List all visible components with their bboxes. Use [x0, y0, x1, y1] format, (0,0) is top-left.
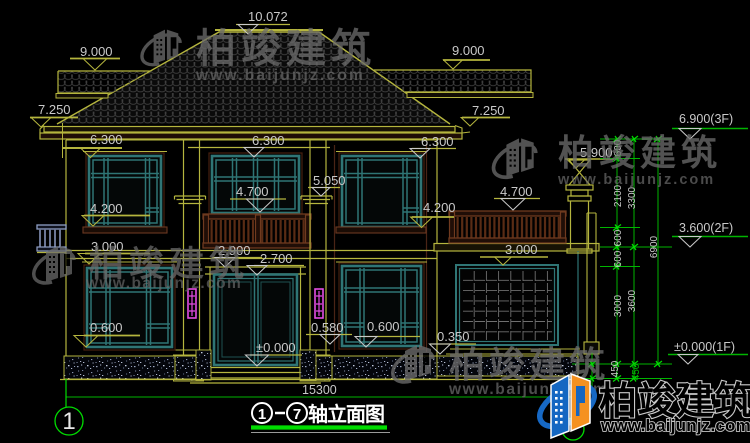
svg-text:1: 1 [258, 406, 266, 423]
svg-text:10.072: 10.072 [248, 9, 288, 24]
svg-text:450: 450 [610, 360, 621, 377]
svg-text:3.000: 3.000 [505, 242, 538, 257]
svg-text:www.baijunjz.com: www.baijunjz.com [195, 67, 365, 84]
svg-text:6.300: 6.300 [90, 132, 123, 147]
svg-text:9.000: 9.000 [80, 44, 113, 59]
svg-text:7: 7 [293, 406, 301, 423]
svg-text:4.700: 4.700 [500, 184, 533, 199]
svg-text:7.250: 7.250 [472, 103, 505, 118]
svg-text:4.200: 4.200 [90, 201, 123, 216]
svg-text:6.300: 6.300 [252, 133, 285, 148]
svg-text:0.600: 0.600 [90, 320, 123, 335]
svg-text:柏竣建筑: 柏竣建筑 [558, 132, 722, 173]
svg-text:6.900(3F): 6.900(3F) [679, 112, 733, 126]
svg-text:0.350: 0.350 [437, 329, 470, 344]
svg-text:6.300: 6.300 [421, 134, 454, 149]
svg-text:600: 600 [613, 250, 624, 267]
svg-text:0.600: 0.600 [367, 319, 400, 334]
svg-text:6900: 6900 [649, 235, 660, 258]
svg-text:轴立面图: 轴立面图 [308, 402, 384, 426]
svg-text:15300: 15300 [302, 383, 337, 397]
svg-text:www.baijunjz.com: www.baijunjz.com [85, 275, 242, 292]
svg-text:4.200: 4.200 [423, 200, 456, 215]
svg-text:450: 450 [631, 363, 642, 380]
svg-text:5.050: 5.050 [313, 173, 346, 188]
svg-text:3000: 3000 [613, 294, 624, 317]
svg-text:www.baijunjz.com: www.baijunjz.com [600, 416, 750, 435]
svg-text:±0.000(1F): ±0.000(1F) [674, 340, 735, 354]
svg-text:4.700: 4.700 [236, 184, 269, 199]
svg-text:柏竣建筑: 柏竣建筑 [196, 27, 376, 71]
svg-text:0.580: 0.580 [311, 320, 344, 335]
svg-text:3600: 3600 [627, 289, 638, 312]
svg-text:9.000: 9.000 [452, 43, 485, 58]
svg-text:600: 600 [613, 229, 624, 246]
svg-text:2.700: 2.700 [260, 251, 293, 266]
svg-text:±0.000: ±0.000 [256, 340, 296, 355]
svg-text:3300: 3300 [627, 186, 638, 209]
svg-text:3.600(2F): 3.600(2F) [679, 221, 733, 235]
svg-text:www.baijunjz.com: www.baijunjz.com [557, 172, 715, 188]
svg-text:7.250: 7.250 [38, 102, 71, 117]
svg-text:1: 1 [62, 408, 75, 435]
